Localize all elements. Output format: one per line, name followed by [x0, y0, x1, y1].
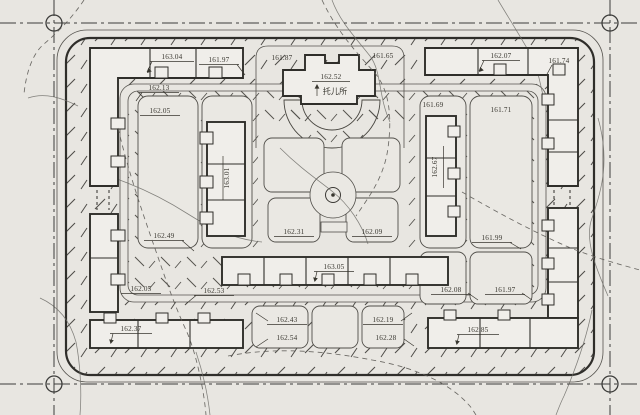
entrance-porch	[406, 274, 418, 285]
elevation-label: 161.87	[272, 54, 293, 62]
plot-bottom-right-b	[470, 252, 532, 304]
site-plan-sheet: 163.04 161.97 162.13 162.05 161.87 161.6…	[0, 0, 640, 415]
elevation-label: 163.04	[162, 53, 183, 61]
elevation-label: 161.99	[482, 234, 503, 242]
plot-right	[470, 96, 532, 248]
elevation-label: 162.07	[491, 52, 512, 60]
elevation-label: 162.05	[131, 285, 152, 293]
building-number-label: 162.37	[121, 325, 142, 333]
elevation-label: 162.28	[376, 334, 397, 342]
entrance-porch	[209, 67, 222, 78]
entrance-porch	[498, 310, 510, 320]
entrance-porch	[444, 310, 456, 320]
elevation-label: 162.13	[149, 84, 170, 92]
entrance-porch	[494, 64, 506, 75]
nursery-name-label: 托儿所	[323, 86, 348, 96]
garden-fountain-center-dot	[331, 193, 335, 197]
entrance-porch	[364, 274, 376, 285]
elevation-label: 162.49	[154, 232, 175, 240]
entrance-porch	[322, 274, 334, 285]
building-bottom-right	[428, 318, 578, 348]
entrance-porch	[553, 64, 565, 75]
nursery-elevation-label: 162.52	[321, 73, 342, 81]
elevation-label: 161.65	[373, 52, 394, 60]
elevation-label: 162.54	[277, 334, 298, 342]
elevation-label: 161.97	[209, 56, 230, 64]
entrance-porch	[104, 313, 116, 323]
elevation-label: 161.97	[495, 286, 516, 294]
garden-bench-pad	[321, 222, 347, 232]
building-left-lower	[90, 214, 118, 312]
entrance-porch	[448, 126, 460, 137]
entrance-porch	[111, 230, 125, 241]
building-number-label: 162.85	[468, 326, 489, 334]
entrance-porch	[111, 118, 125, 129]
entrance-porch	[200, 212, 213, 224]
elevation-label: 162.31	[284, 228, 305, 236]
entrance-porch	[238, 274, 250, 285]
entrance-porch	[111, 274, 125, 285]
entrance-porch	[155, 67, 168, 78]
entrance-porch	[448, 206, 460, 217]
elevation-label: 161.74	[549, 57, 570, 65]
elevation-label: 162.53	[204, 287, 225, 295]
entrance-porch	[198, 313, 210, 323]
entrance-porch	[200, 132, 213, 144]
elevation-label: 161.69	[423, 101, 444, 109]
plot-bottom-2	[312, 306, 358, 348]
building-number-label: 163.05	[324, 263, 345, 271]
elevation-label: 162.43	[277, 316, 298, 324]
entrance-porch	[542, 94, 554, 105]
elevation-label: 162.08	[441, 286, 462, 294]
entrance-porch	[280, 274, 292, 285]
entrance-porch	[200, 176, 213, 188]
elevation-label: 162.19	[373, 316, 394, 324]
entrance-porch	[448, 168, 460, 179]
entrance-porch	[542, 294, 554, 305]
entrance-porch	[156, 313, 168, 323]
elevation-label: 161.71	[491, 106, 512, 114]
entrance-porch	[542, 138, 554, 149]
entrance-porch	[542, 220, 554, 231]
elevation-label: 162.05	[150, 107, 171, 115]
elevation-label: 162.09	[362, 228, 383, 236]
entrance-porch	[542, 258, 554, 269]
entrance-porch	[111, 156, 125, 167]
site-plan-drawing: 163.04 161.97 162.13 162.05 161.87 161.6…	[0, 0, 640, 415]
building-number-label: 163.01	[223, 167, 231, 188]
building-number-label: 162.67	[431, 156, 439, 177]
